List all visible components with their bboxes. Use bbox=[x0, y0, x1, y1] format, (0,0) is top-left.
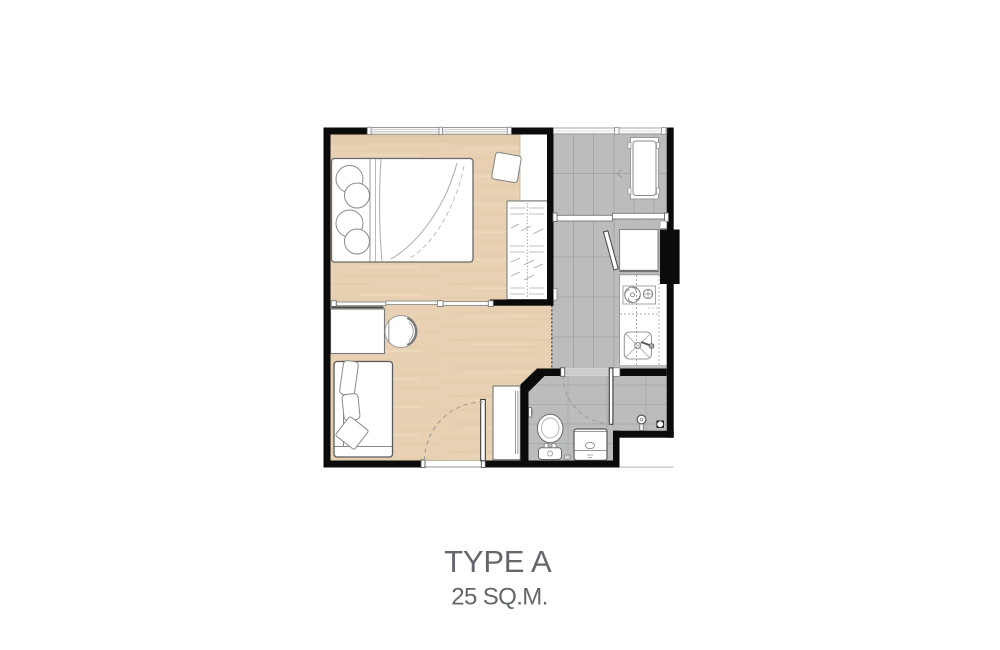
svg-text:TYPE A: TYPE A bbox=[444, 544, 552, 579]
svg-text:25 SQ.M.: 25 SQ.M. bbox=[451, 584, 548, 611]
